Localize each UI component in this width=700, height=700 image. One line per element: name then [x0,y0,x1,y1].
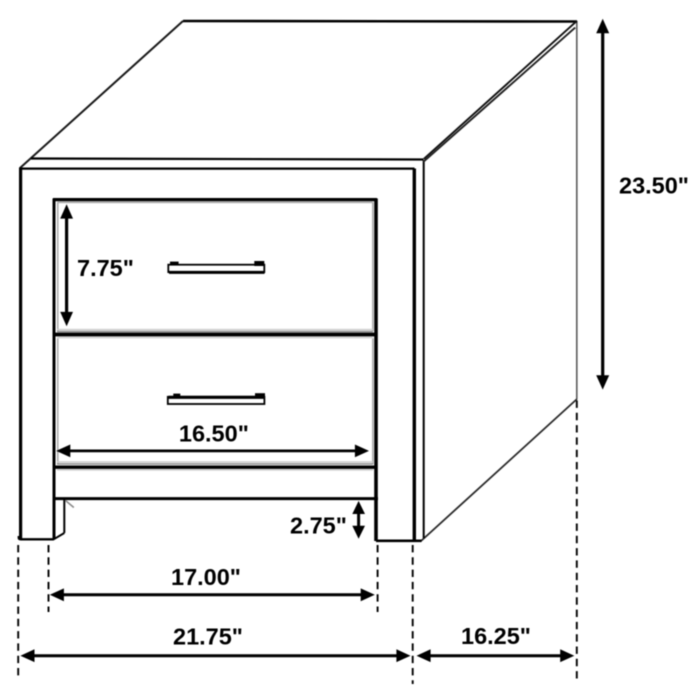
svg-text:16.25": 16.25" [461,623,531,649]
svg-text:7.75": 7.75" [77,255,134,281]
svg-text:16.50": 16.50" [179,421,249,447]
svg-text:2.75": 2.75" [290,513,347,539]
svg-text:21.75": 21.75" [173,623,243,649]
svg-text:23.50": 23.50" [619,173,689,199]
svg-text:17.00": 17.00" [171,564,241,590]
